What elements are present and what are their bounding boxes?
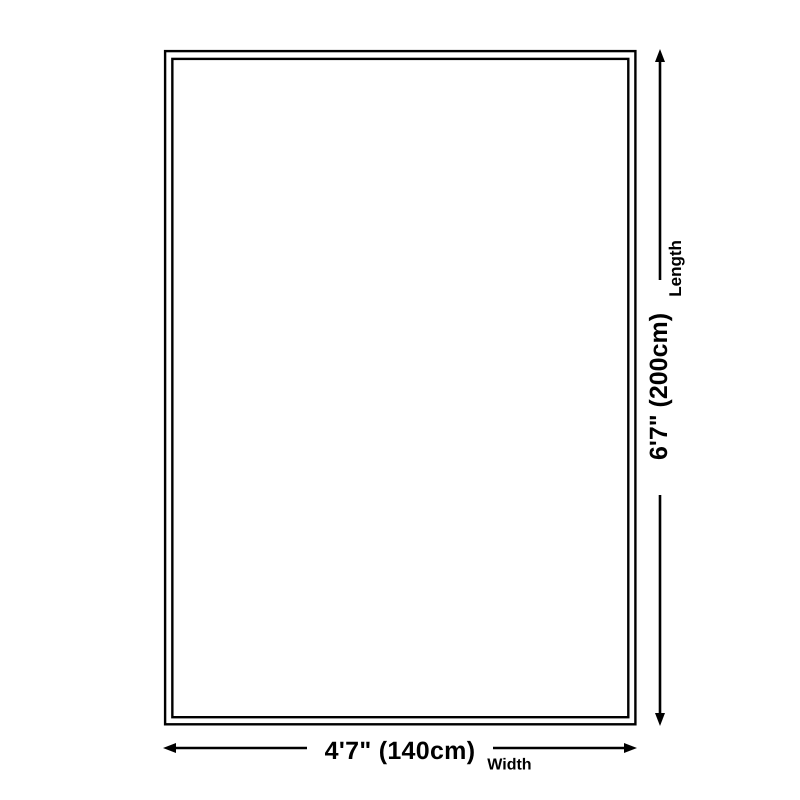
svg-text:Width: Width bbox=[487, 757, 531, 774]
svg-text:4'7" (140cm): 4'7" (140cm) bbox=[325, 737, 476, 765]
svg-text:Length: Length bbox=[666, 240, 685, 297]
svg-text:6'7" (200cm): 6'7" (200cm) bbox=[645, 313, 673, 460]
